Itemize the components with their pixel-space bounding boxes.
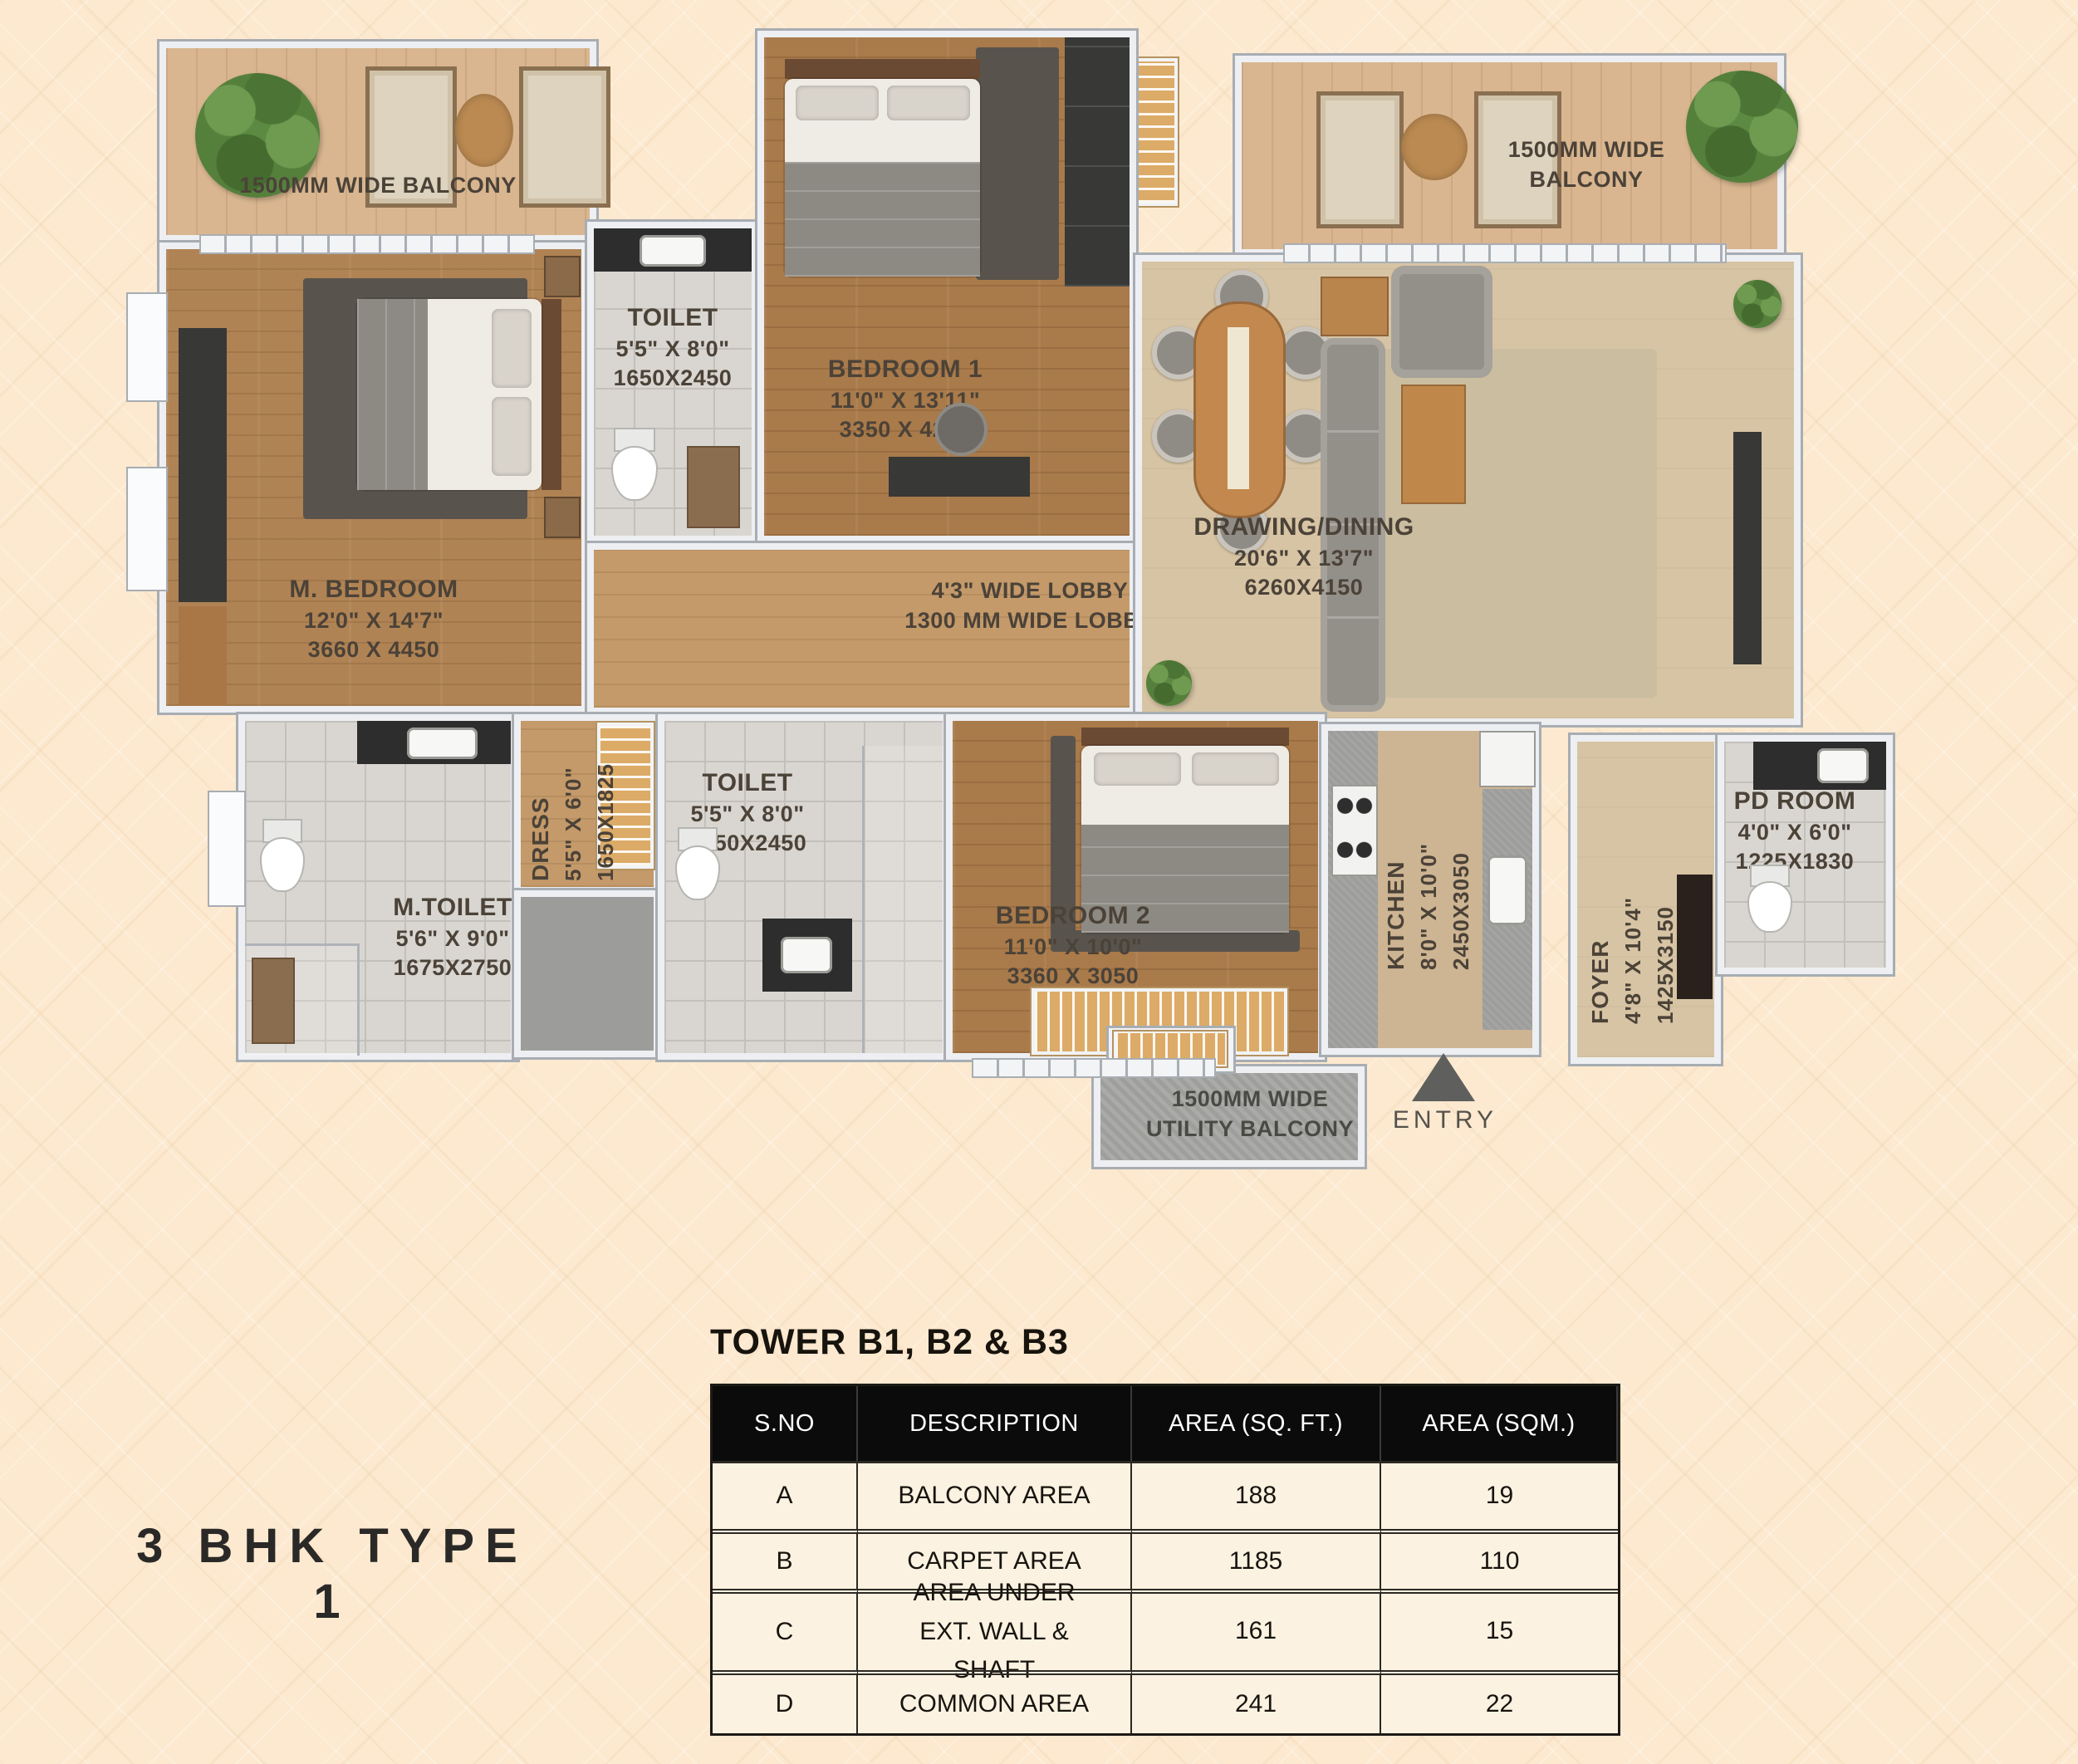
table-header-cell: S.NO: [713, 1386, 858, 1461]
foyer-label: FOYER 4'8" X 10'4" 1425X3150: [1587, 825, 1679, 1024]
pd-room-label: PD ROOM 4'0" X 6'0" 1225X1830: [1724, 785, 1865, 877]
room-pd: PD ROOM 4'0" X 6'0" 1225X1830: [1724, 742, 1886, 968]
room-toilet-top: TOILET 5'5" X 8'0" 1650X2450: [594, 228, 752, 536]
table-cell: 110: [1381, 1529, 1618, 1589]
drawing-dining-label: DRAWING/DINING 20'6" X 13'7" 6260X4150: [1154, 511, 1453, 603]
cabinet-icon: [179, 606, 227, 706]
table-cell: D: [713, 1670, 858, 1733]
plant-icon: [1733, 280, 1781, 328]
toilet-top-label: TOILET 5'5" X 8'0" 1650X2450: [594, 301, 752, 394]
window: [208, 791, 246, 907]
balcony-top-right: 1500MM WIDEBALCONY: [1242, 62, 1777, 249]
window: [126, 467, 168, 591]
table-cell: 22: [1381, 1670, 1618, 1733]
nightstand-icon: [544, 256, 581, 297]
tower-title: TOWER B1, B2 & B3: [710, 1322, 1069, 1363]
room-toilet-mid: TOILET 5'5" X 8'0" 1650X2450: [664, 721, 943, 1053]
pillow: [1094, 752, 1181, 786]
table-cell: B: [713, 1529, 858, 1589]
entry-label: ENTRY: [1370, 1106, 1520, 1134]
table-cell: 161: [1132, 1589, 1381, 1670]
sink-icon: [640, 235, 706, 267]
sink-icon: [1817, 748, 1869, 783]
room-bedroom-1: BEDROOM 1 11'0" X 13'11" 3350 X 4250: [764, 37, 1130, 536]
room-kitchen: KITCHEN 8'0" X 10'0" 2450X3050: [1328, 731, 1532, 1048]
kitchen-counter: [1328, 731, 1378, 1048]
table-cell: 241: [1132, 1670, 1381, 1733]
window: [972, 1058, 1216, 1078]
room-foyer: FOYER 4'8" X 10'4" 1425X3150: [1577, 742, 1714, 1057]
lobby: 4'3" WIDE LOBBY1300 MM WIDE LOBBY: [594, 550, 1130, 708]
pillow: [1192, 752, 1279, 786]
room-bedroom-2: BEDROOM 2 11'0" X 10'0" 3360 X 3050: [953, 721, 1318, 1053]
toilet-wc-icon: [1745, 865, 1791, 929]
toilet-wc-icon: [257, 819, 304, 889]
room-drawing-dining: DRAWING/DINING 20'6" X 13'7" 6260X4150: [1142, 262, 1794, 718]
desk-chair-icon: [934, 403, 988, 456]
dining-table-icon: [1193, 301, 1286, 518]
nightstand-icon: [544, 497, 581, 538]
bedroom-1-label: BEDROOM 1 11'0" X 13'11" 3350 X 4250: [764, 353, 1046, 445]
lounge-chair-icon: [1316, 91, 1404, 228]
bed-blanket: [785, 162, 980, 277]
wardrobe-icon: [179, 328, 227, 602]
sink-icon: [407, 728, 478, 759]
utility-balcony-label: 1500MM WIDEUTILITY BALCONY: [1142, 1085, 1358, 1144]
table-header-cell: DESCRIPTION: [858, 1386, 1132, 1461]
table-cell: 1185: [1132, 1529, 1381, 1589]
balcony-top-right-label: 1500MM WIDEBALCONY: [1433, 135, 1740, 194]
bed-headboard: [785, 59, 980, 79]
bedroom-2-label: BEDROOM 2 11'0" X 10'0" 3360 X 3050: [953, 899, 1193, 992]
sliding-door: [1283, 243, 1727, 263]
fridge-icon: [1479, 731, 1536, 787]
bed-headboard: [1081, 728, 1289, 746]
pillow: [492, 309, 532, 388]
shaft: [521, 897, 654, 1051]
table-cell: C: [713, 1589, 858, 1670]
page-title: 3 BHK TYPE 1: [125, 1518, 540, 1629]
room-dress: DRESS 5'5" X 6'0" 1650X1825: [521, 721, 654, 887]
entry-arrow-icon: [1412, 1053, 1475, 1101]
table-cell: 19: [1381, 1461, 1618, 1529]
brochure-page: { "page_title": "3 BHK TYPE 1", "plan": …: [0, 0, 2078, 1764]
round-table-icon: [455, 94, 513, 167]
area-table: S.NO DESCRIPTION AREA (SQ. FT.) AREA (SQ…: [710, 1384, 1620, 1736]
table-cell: AREA UNDER EXT. WALL & SHAFT: [858, 1589, 1132, 1670]
shower-bench-icon: [687, 446, 740, 528]
desk-icon: [889, 457, 1030, 497]
table-cell: 15: [1381, 1589, 1618, 1670]
window: [126, 292, 168, 402]
cabinet-icon: [1677, 875, 1713, 999]
table-cell: 188: [1132, 1461, 1381, 1529]
sliding-door: [199, 234, 535, 254]
sink-icon: [781, 937, 832, 973]
shower-bench-icon: [252, 958, 295, 1044]
table-cell: A: [713, 1461, 858, 1529]
room-m-toilet: M.TOILET 5'6" X 9'0" 1675X2750: [245, 721, 511, 1053]
plant-icon: [1146, 660, 1192, 706]
stove-icon: [1331, 785, 1378, 876]
table-runner: [1228, 327, 1249, 489]
shower-area: [862, 746, 945, 1053]
toilet-wc-icon: [673, 827, 719, 897]
pillow: [796, 86, 879, 120]
coffee-table-icon: [1401, 385, 1466, 504]
dress-label: DRESS 5'5" X 6'0" 1650X1825: [527, 728, 619, 881]
table-cell: COMMON AREA: [858, 1670, 1132, 1733]
kitchen-label: KITCHEN 8'0" X 10'0" 2450X3050: [1383, 779, 1474, 970]
console-table-icon: [1321, 277, 1389, 336]
utility-balcony: 1500MM WIDEUTILITY BALCONY: [1100, 1073, 1358, 1160]
balcony-top-left: 1500MM WIDE BALCONY: [166, 48, 590, 235]
balcony-top-left-label: 1500MM WIDE BALCONY: [166, 171, 590, 201]
wardrobe-icon: [1065, 37, 1130, 287]
table-header-cell: AREA (SQM.): [1381, 1386, 1618, 1461]
pillow: [887, 86, 970, 120]
pillow: [492, 397, 532, 476]
bed-blanket: [357, 299, 428, 490]
tv-unit-icon: [1733, 432, 1762, 664]
rug: [976, 47, 1059, 280]
armchair-icon: [1391, 266, 1492, 378]
m-bedroom-label: M. BEDROOM 12'0" X 14'7" 3660 X 4450: [233, 573, 515, 665]
room-m-bedroom: M. BEDROOM 12'0" X 14'7" 3660 X 4450: [166, 249, 581, 706]
table-header-cell: AREA (SQ. FT.): [1132, 1386, 1381, 1461]
bed-headboard: [542, 299, 561, 490]
toilet-wc-icon: [609, 428, 657, 497]
table-cell: BALCONY AREA: [858, 1461, 1132, 1529]
sink-icon: [1487, 855, 1527, 925]
